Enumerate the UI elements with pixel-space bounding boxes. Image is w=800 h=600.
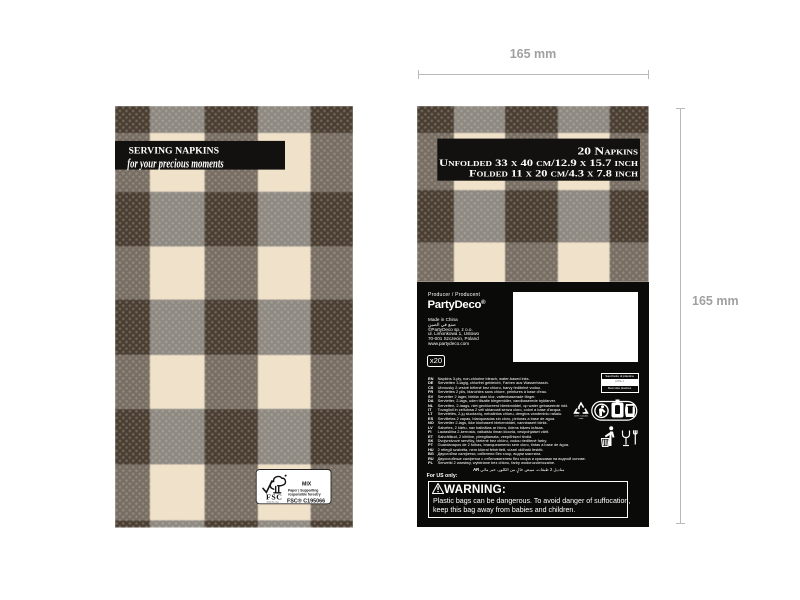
- svg-text:www.fsc.org: www.fsc.org: [267, 500, 280, 503]
- svg-text:Unfolded 33 x 40 cm/12.9 x 15.: Unfolded 33 x 40 cm/12.9 x 15.7 inch: [439, 158, 639, 169]
- svg-text:MIX: MIX: [302, 482, 312, 488]
- svg-text:20 Napkins: 20 Napkins: [578, 146, 639, 157]
- svg-text:for your precious moments: for your precious moments: [127, 157, 224, 171]
- svg-text:Folded 11 x 20 cm/4.3 x 7.8 in: Folded 11 x 20 cm/4.3 x 7.8 inch: [469, 169, 639, 180]
- svg-text:responsible forestry: responsible forestry: [288, 492, 321, 496]
- svg-text:FSC: FSC: [266, 493, 283, 502]
- svg-text:SERVING NAPKINS: SERVING NAPKINS: [129, 145, 220, 156]
- svg-text:FSC® C195066: FSC® C195066: [287, 497, 325, 504]
